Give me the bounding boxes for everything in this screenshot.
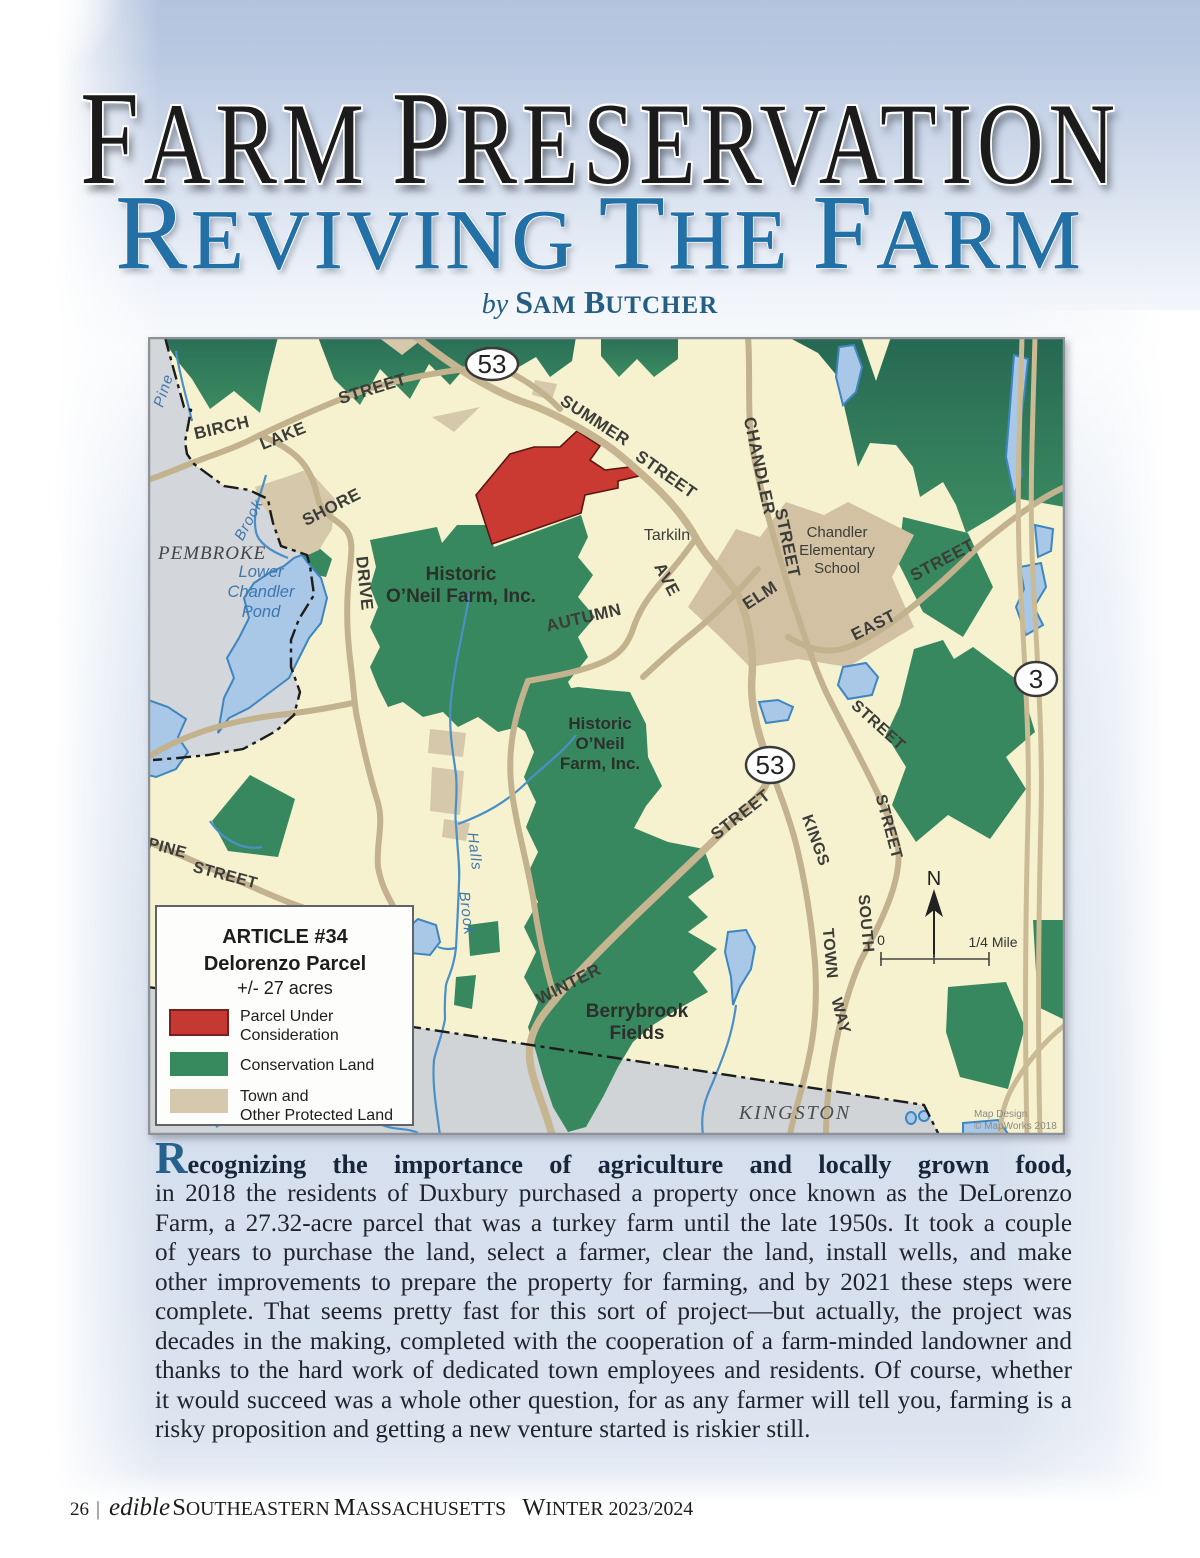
svg-text:Other Protected Land: Other Protected Land	[240, 1107, 393, 1124]
svg-text:N: N	[927, 868, 941, 890]
svg-text:KINGSTON: KINGSTON	[738, 1102, 851, 1124]
svg-text:+/- 27 acres: +/- 27 acres	[237, 978, 333, 998]
svg-text:O’Neil: O’Neil	[575, 734, 624, 753]
svg-text:Chandler: Chandler	[807, 524, 868, 541]
svg-text:Fields: Fields	[610, 1023, 665, 1044]
svg-text:PEMBROKE: PEMBROKE	[157, 543, 266, 564]
svg-text:53: 53	[478, 349, 507, 379]
svg-text:Farm, Inc.: Farm, Inc.	[560, 754, 640, 773]
svg-text:O’Neil Farm, Inc.: O’Neil Farm, Inc.	[386, 586, 536, 607]
svg-text:Chandler: Chandler	[228, 583, 296, 601]
svg-text:ARTICLE #34: ARTICLE #34	[222, 926, 348, 948]
svg-text:Elementary: Elementary	[799, 542, 875, 559]
svg-text:Lower: Lower	[239, 563, 285, 581]
svg-text:Historic: Historic	[426, 564, 497, 585]
svg-text:Pond: Pond	[242, 603, 281, 621]
svg-text:Parcel Under: Parcel Under	[240, 1008, 334, 1025]
svg-text:Conservation Land: Conservation Land	[240, 1057, 374, 1074]
svg-text:1/4 Mile: 1/4 Mile	[968, 934, 1017, 950]
svg-text:Tarkiln: Tarkiln	[644, 527, 690, 544]
svg-text:Map Design: Map Design	[974, 1109, 1027, 1120]
svg-text:Consideration: Consideration	[240, 1027, 339, 1044]
svg-text:0: 0	[877, 932, 885, 948]
svg-text:School: School	[814, 560, 860, 577]
svg-text:3: 3	[1029, 664, 1043, 694]
svg-text:© MapWorks 2018: © MapWorks 2018	[974, 1121, 1057, 1132]
svg-text:Berrybrook: Berrybrook	[586, 1001, 689, 1022]
svg-text:Delorenzo Parcel: Delorenzo Parcel	[204, 953, 366, 975]
svg-text:Town and: Town and	[240, 1088, 309, 1105]
svg-text:Historic: Historic	[568, 714, 631, 733]
svg-text:53: 53	[756, 750, 785, 780]
